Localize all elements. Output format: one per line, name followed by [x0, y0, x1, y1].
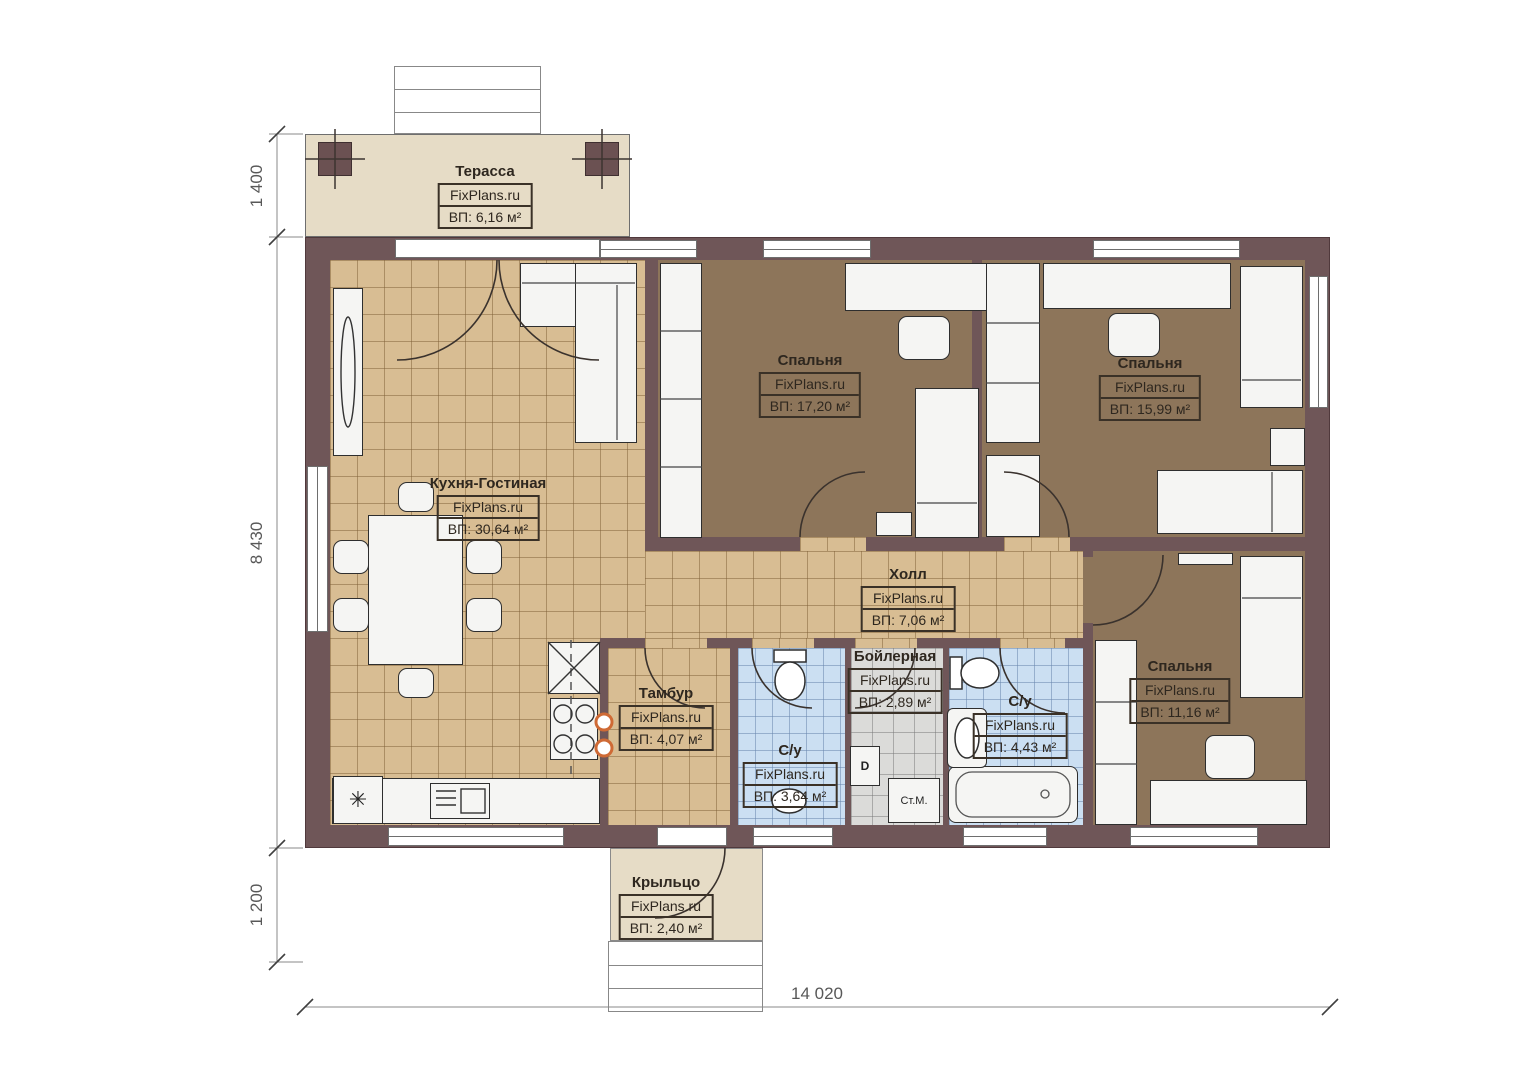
room-name: Крыльцо: [619, 874, 714, 891]
room-name: Терасса: [438, 163, 533, 180]
bed: [1240, 556, 1303, 698]
floor-plan: ✳ D Ст.М.: [0, 0, 1528, 1080]
room-area: ВП: 2,89 м²: [850, 690, 941, 712]
shelf: [986, 455, 1040, 537]
nightstand: [876, 512, 912, 536]
room-name: Тамбур: [619, 685, 714, 702]
room-label-bedroom-3: Спальня FixPlans.ru ВП: 11,16 м²: [1129, 658, 1230, 724]
watermark: FixPlans.ru: [440, 185, 531, 205]
desk-chair: [898, 316, 950, 360]
room-label-bedroom-1: Спальня FixPlans.ru ВП: 17,20 м²: [759, 352, 861, 418]
room-area: ВП: 15,99 м²: [1101, 397, 1199, 419]
door-gap: [1083, 557, 1093, 623]
desk: [845, 263, 993, 311]
boiler-unit-label: D: [861, 759, 870, 773]
watermark: FixPlans.ru: [863, 588, 954, 608]
desk-chair: [1205, 735, 1255, 779]
dining-chair: [466, 598, 502, 632]
step-line: [395, 112, 540, 113]
watermark: FixPlans.ru: [621, 896, 712, 916]
dining-chair: [398, 482, 434, 512]
dimension-porch-depth: 1 200: [247, 884, 266, 927]
terrace-column: [318, 142, 352, 176]
window: [307, 466, 328, 632]
desk: [1150, 780, 1307, 825]
watermark: FixPlans.ru: [1131, 680, 1228, 700]
door-gap: [645, 638, 707, 648]
room-label-hall: Холл FixPlans.ru ВП: 7,06 м²: [861, 566, 956, 632]
door-gap: [800, 537, 866, 551]
room-name: Спальня: [1099, 355, 1201, 372]
room-name: Бойлерная: [848, 648, 943, 665]
stove: [550, 698, 598, 760]
watermark: FixPlans.ru: [761, 374, 859, 394]
window: [1130, 827, 1258, 846]
watermark: FixPlans.ru: [745, 764, 836, 784]
watermark: FixPlans.ru: [621, 707, 712, 727]
window: [963, 827, 1047, 846]
room-label-bathroom-small: С/у FixPlans.ru ВП: 3,64 м²: [743, 742, 838, 808]
dining-chair: [398, 668, 434, 698]
room-area: ВП: 4,07 м²: [621, 727, 712, 749]
room-name: Спальня: [759, 352, 861, 369]
room-area: ВП: 11,16 м²: [1131, 700, 1228, 722]
room-label-porch: Крыльцо FixPlans.ru ВП: 2,40 м²: [619, 874, 714, 940]
bed: [915, 388, 979, 538]
room-label-boiler-room: Бойлерная FixPlans.ru ВП: 2,89 м²: [848, 648, 943, 714]
wardrobe: [986, 263, 1040, 443]
room-label-bedroom-2: Спальня FixPlans.ru ВП: 15,99 м²: [1099, 355, 1201, 421]
room-label-terrace: Терасса FixPlans.ru ВП: 6,16 м²: [438, 163, 533, 229]
fridge: ✳: [333, 776, 383, 824]
dining-chair: [333, 540, 369, 574]
washing-machine-label: Ст.М.: [900, 795, 927, 807]
room-area: ВП: 4,43 м²: [975, 735, 1066, 757]
dining-chair: [333, 598, 369, 632]
room-label-bathroom-large: С/у FixPlans.ru ВП: 4,43 м²: [973, 693, 1068, 759]
room-area: ВП: 7,06 м²: [863, 608, 954, 630]
room-name: Холл: [861, 566, 956, 583]
door-gap: [752, 638, 814, 648]
door-gap: [1004, 537, 1070, 551]
desk: [1043, 263, 1231, 309]
corner-sofa: [575, 263, 637, 443]
bed: [1157, 470, 1303, 534]
room-label-vestibule: Тамбур FixPlans.ru ВП: 4,07 м²: [619, 685, 714, 751]
terrace-door-opening: [395, 239, 600, 258]
door-gap: [1000, 638, 1065, 648]
dimension-total-width: 14 020: [791, 984, 843, 1003]
wall-segment: [600, 638, 608, 825]
room-area: ВП: 30,64 м²: [439, 517, 537, 539]
room-name: Спальня: [1129, 658, 1230, 675]
wardrobe: [660, 263, 702, 538]
room-area: ВП: 2,40 м²: [621, 916, 712, 938]
boiler-unit: D: [850, 746, 880, 786]
dimension-terrace-depth: 1 400: [247, 165, 266, 208]
terrace-steps: [394, 66, 541, 134]
window: [600, 240, 697, 258]
terrace-column: [585, 142, 619, 176]
porch-steps: [608, 941, 763, 1012]
dimension-house-depth: 8 430: [247, 522, 266, 565]
nightstand: [1270, 428, 1305, 466]
watermark: FixPlans.ru: [439, 497, 537, 517]
window: [1093, 240, 1240, 258]
fridge-snowflake-icon: ✳: [349, 787, 367, 813]
watermark: FixPlans.ru: [1101, 377, 1199, 397]
watermark: FixPlans.ru: [975, 715, 1066, 735]
room-name: С/у: [743, 742, 838, 759]
desk-chair: [1108, 313, 1160, 357]
entrance-door-opening: [657, 827, 727, 846]
room-area: ВП: 6,16 м²: [440, 205, 531, 227]
kitchen-sink: [430, 783, 490, 819]
bathtub: [948, 766, 1078, 823]
kitchen-cabinet: [548, 642, 600, 694]
wall-segment: [645, 537, 1305, 551]
step-line: [609, 988, 762, 989]
wall-segment: [730, 648, 738, 825]
tall-cabinet: [333, 288, 363, 456]
washing-machine: Ст.М.: [888, 778, 940, 823]
room-name: С/у: [973, 693, 1068, 710]
room-area: ВП: 3,64 м²: [745, 784, 836, 806]
shelf: [1178, 553, 1233, 565]
room-label-kitchen-living: Кухня-Гостиная FixPlans.ru ВП: 30,64 м²: [430, 475, 547, 541]
dining-chair: [466, 540, 502, 574]
window: [753, 827, 833, 846]
room-name: Кухня-Гостиная: [430, 475, 547, 492]
window: [763, 240, 871, 258]
bed: [1240, 266, 1303, 408]
wall-segment: [645, 260, 658, 551]
room-area: ВП: 17,20 м²: [761, 394, 859, 416]
door-gap: [855, 638, 917, 648]
window: [388, 827, 564, 846]
window: [1309, 276, 1328, 408]
watermark: FixPlans.ru: [850, 670, 941, 690]
step-line: [395, 89, 540, 90]
step-line: [609, 965, 762, 966]
